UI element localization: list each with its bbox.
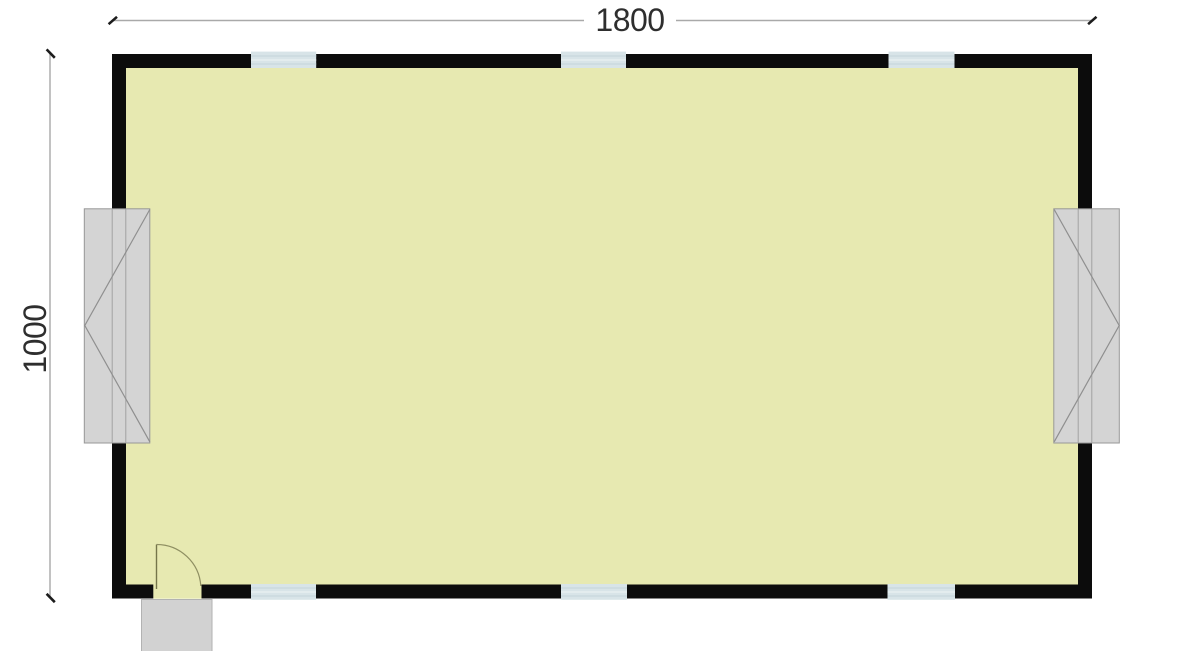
svg-text:1800: 1800	[595, 2, 664, 38]
svg-text:1000: 1000	[17, 304, 53, 373]
